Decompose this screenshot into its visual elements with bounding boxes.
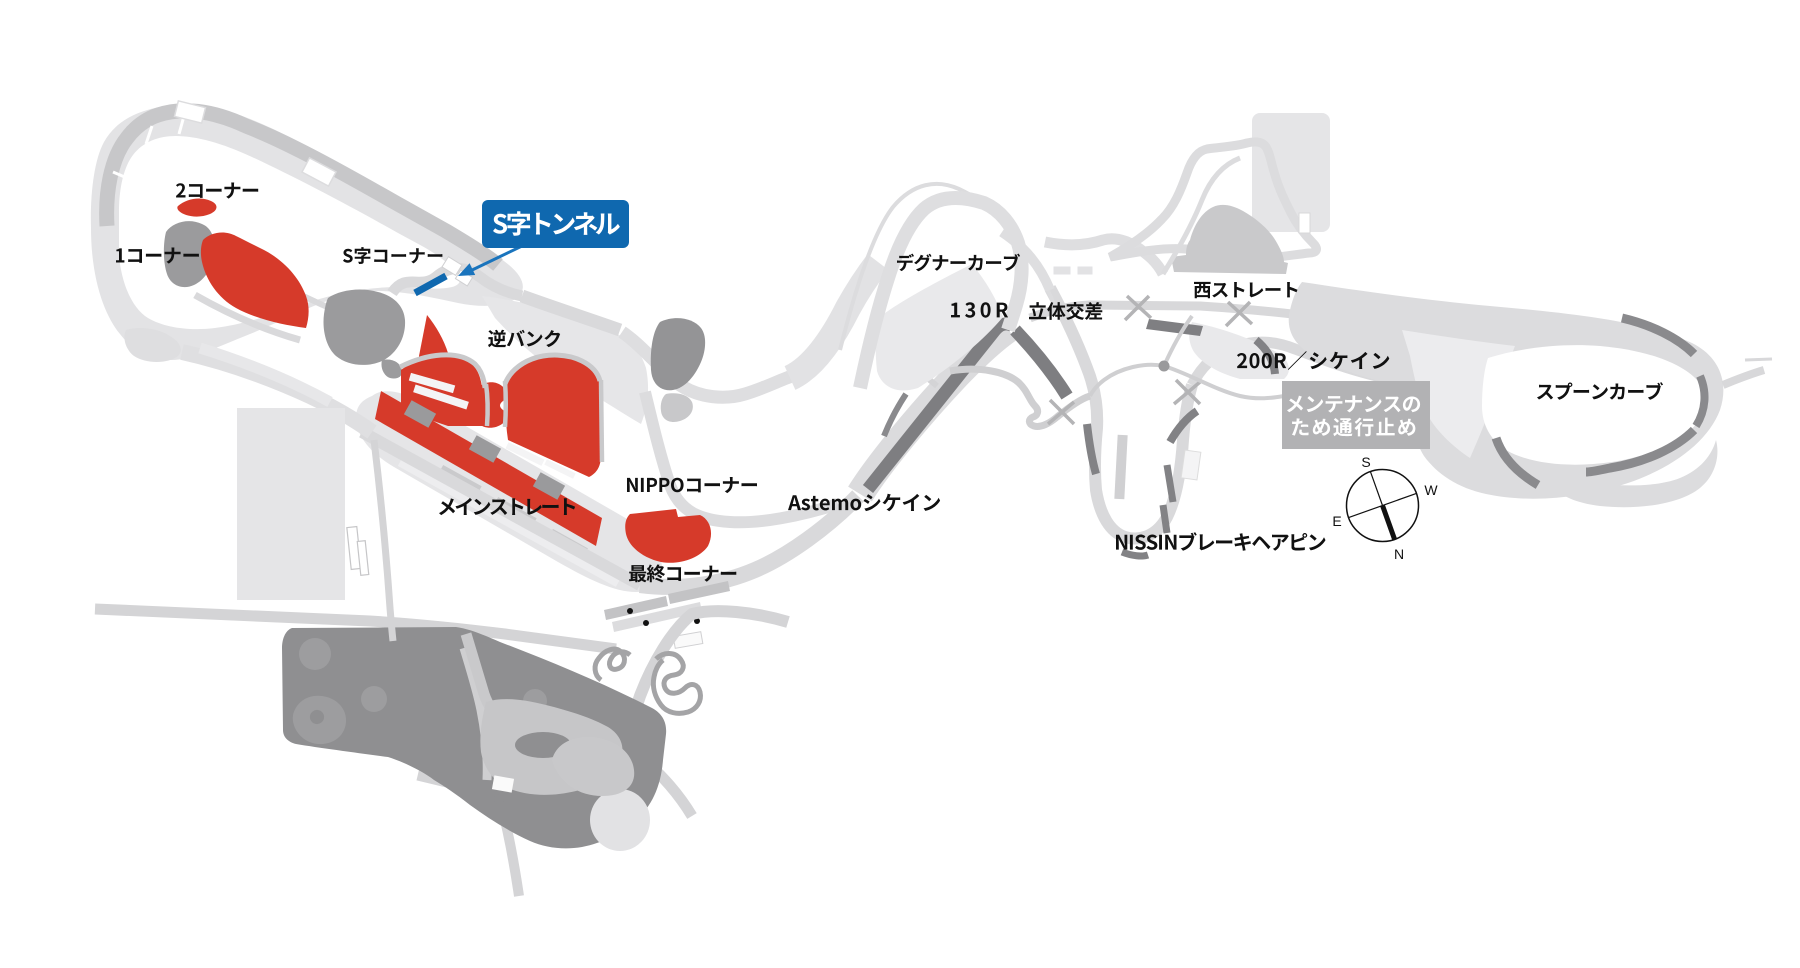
svg-text:E: E xyxy=(1332,513,1341,529)
svg-text:W: W xyxy=(1424,482,1438,498)
svg-text:S: S xyxy=(1361,454,1370,470)
svg-text:N: N xyxy=(1394,546,1404,562)
